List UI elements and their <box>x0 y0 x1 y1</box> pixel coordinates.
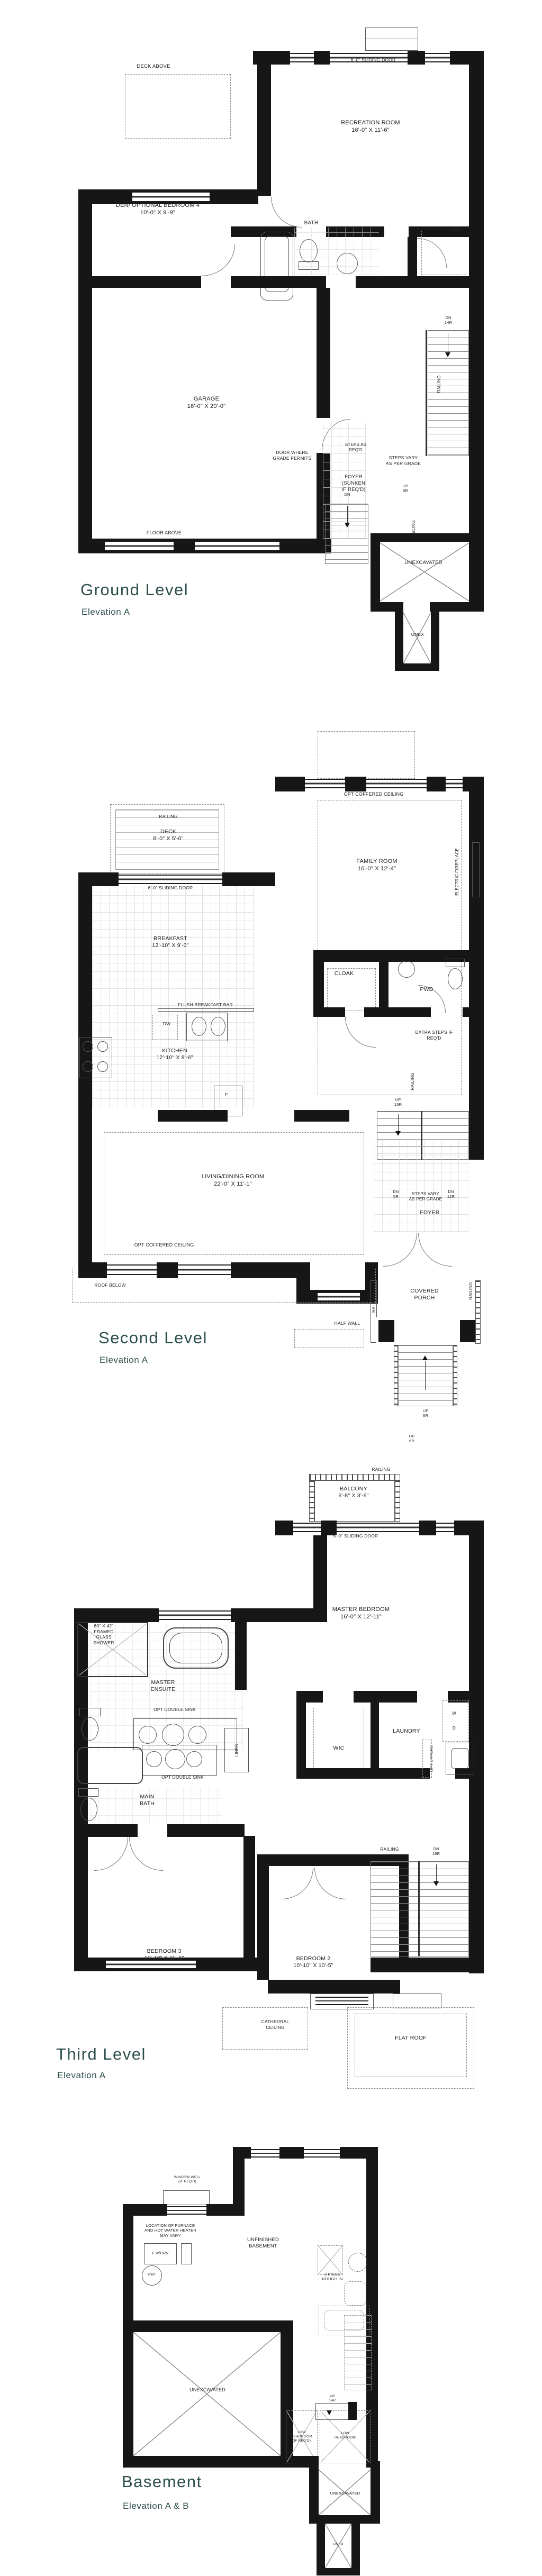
breakfast-label: BREAKFAST 12'-10" X 9'-0" <box>152 935 188 949</box>
stair-rail <box>418 1861 420 1956</box>
breakfast-bar-counter <box>158 1008 254 1012</box>
washer-dryer <box>442 1700 469 1742</box>
window <box>293 1523 321 1532</box>
porch-step-rail <box>453 1345 457 1406</box>
second-level-subtitle: Elevation A <box>100 1354 148 1366</box>
dn-16r-label: DN 16R <box>432 1846 440 1856</box>
low-headroom-if-reqd-label: LOW HEADROOM (IF REQ'D) <box>291 2431 312 2443</box>
wall <box>395 663 439 671</box>
bed3-door-arc-right <box>129 1837 163 1871</box>
laundry-sink-bowl <box>451 1748 469 1769</box>
sink-bowl <box>211 1017 225 1036</box>
wic-2-label: WIC <box>333 1745 344 1752</box>
porch-steps <box>398 1345 453 1406</box>
vanity-sink <box>146 1751 162 1767</box>
master-ensuite-label: MASTER ENSUITE <box>151 1679 176 1693</box>
fireplace <box>472 842 480 897</box>
door-arc <box>271 197 302 227</box>
flatroof-bay <box>393 1994 441 2008</box>
porch-pillar <box>376 1317 397 1345</box>
wall <box>427 777 446 791</box>
vanity-sink <box>165 1749 185 1769</box>
unexcavated-2-label: UNEXCAVATED <box>330 2491 360 2496</box>
wall <box>354 1691 417 1703</box>
garage-door <box>105 541 174 551</box>
wall <box>395 612 403 671</box>
wall <box>233 2147 245 2206</box>
wall <box>279 2147 304 2159</box>
wic-shelving <box>313 1708 364 1769</box>
stair-arrow-down <box>395 1131 401 1136</box>
bedroom-3-label: BEDROOM 3 10'-10" X 11'-5" <box>144 1948 184 1962</box>
cathedral-ceiling-label: CATHEDRAL CEILING <box>261 2019 290 2030</box>
vanity-sink <box>186 1751 202 1767</box>
balcony-label: BALCONY 6'-8" X 3'-6" <box>338 1486 368 1499</box>
wall <box>371 1691 379 1777</box>
flush-breakfast-bar-label: FLUSH BREAKFAST BAR <box>178 1002 233 1008</box>
wall <box>222 872 275 886</box>
opt-double-sink-ensuite-label: OPT DOUBLE SINK <box>153 1707 196 1713</box>
stair-arrow-down <box>445 352 450 357</box>
railing-upper-stair-label: RAILING <box>437 375 442 393</box>
foyer-sunken-label: FOYER (SUNKEN IF REQ'D) <box>341 474 365 493</box>
sliding-door <box>337 1523 419 1532</box>
entry-step <box>365 28 418 51</box>
window <box>446 779 463 788</box>
stair-dashed-up <box>344 2315 372 2390</box>
door-where-grade-permits-label: DOOR WHERE GRADE PERMITS <box>273 450 312 461</box>
wall <box>463 1007 484 1017</box>
dishwasher <box>152 1015 178 1040</box>
wall <box>275 777 305 791</box>
up-6r-a-label: UP 6R <box>423 1408 429 1418</box>
wall <box>123 2456 293 2468</box>
family-coffered-outline <box>318 800 462 1095</box>
wall-left <box>78 189 92 553</box>
burner <box>97 1061 108 1072</box>
porch-railing <box>475 1280 481 1344</box>
wall <box>275 1521 293 1535</box>
sliding-door <box>119 875 222 884</box>
bed2-door-arc-left <box>282 1868 313 1899</box>
window <box>159 1610 231 1620</box>
wall <box>371 533 484 542</box>
recreation-room-label: RECREATION ROOM 16'-0" X 11'-6" <box>341 120 400 134</box>
wall <box>408 51 425 65</box>
step-arrow-stem <box>425 1361 426 1390</box>
window <box>251 2149 279 2158</box>
stair-dn16r <box>371 1861 469 1956</box>
half-wall-label: HALF WALL <box>335 1321 360 1326</box>
wall <box>431 612 439 671</box>
basement-subtitle: Elevation A & B <box>123 2500 189 2511</box>
unex-x <box>403 613 431 663</box>
flat-roof-label: FLAT ROOF <box>395 2035 427 2042</box>
bath-label: BATH <box>304 220 319 227</box>
wall-wic <box>408 237 417 276</box>
garage-label: GARAGE 18'-0" X 20'-0" <box>187 396 226 411</box>
pwd-label: PWD <box>420 986 433 993</box>
window <box>290 53 314 62</box>
ground-level-title: Ground Level <box>80 580 188 600</box>
wall <box>243 1836 255 1966</box>
three-piece-rough-in-label: 3 PIECE ROUGH IN <box>322 2272 342 2282</box>
deck-above-label: DECK ABOVE <box>137 63 170 70</box>
bath-tile <box>294 227 379 275</box>
wall <box>296 1768 380 1779</box>
wall <box>268 1980 400 1994</box>
vanity-sink <box>188 1726 206 1744</box>
stair-arrow-down <box>345 523 350 527</box>
sliding-door-5ft-label: 5'-0" SLIDING DOOR <box>333 1533 378 1539</box>
furnace-note-label: LOCATION OF FURNACE AND HOT WATER HEATER… <box>144 2223 196 2238</box>
half-wall-vertical-label: HALF WALL <box>372 1288 377 1313</box>
flat-roof-inner <box>355 2014 467 2077</box>
window <box>305 779 345 788</box>
landing-arrow-down <box>327 2410 332 2415</box>
window <box>132 192 210 202</box>
wall <box>345 777 366 791</box>
wall-garage-top <box>238 276 296 288</box>
bed2-door-arc-right <box>314 1868 346 1899</box>
wall <box>235 1622 247 1690</box>
covered-porch-label: COVERED PORCH <box>410 1288 438 1301</box>
burner <box>97 1041 108 1052</box>
kitchen-label: KITCHEN 12'-10" X 8'-6" <box>156 1048 193 1061</box>
window <box>425 53 450 62</box>
up-16r-label: UP 16R <box>394 1097 402 1107</box>
window <box>436 1523 454 1532</box>
wall <box>419 1521 436 1535</box>
wall <box>74 1824 138 1837</box>
step-arrow-up <box>422 1355 428 1360</box>
wall-garage-top <box>78 276 201 288</box>
opt-uppers-label: OPT UPPERS <box>429 1745 433 1772</box>
ensuite-tub-inner <box>169 1633 222 1663</box>
dn-12r-label: DN 12R <box>447 1189 455 1199</box>
family-room-label: FAMILY ROOM 16'-0" X 12'-4" <box>356 858 398 873</box>
wic-label: WIC <box>451 226 462 233</box>
sliding-door-6ft-2-label: 6'-0" SLIDING DOOR <box>148 885 193 891</box>
unfinished-basement-label: UNFINISHED BASEMENT <box>247 2237 279 2250</box>
dn-14r-label: DN 14R <box>445 315 452 325</box>
stair-arrow-stem <box>448 333 448 353</box>
unexcavated-main-label: UNEXCAVATED <box>189 2387 225 2393</box>
opt-double-sink-mainbath-label: OPT DOUBLE SINK <box>161 1774 204 1780</box>
rough-in-toilet <box>344 2281 366 2306</box>
up-6r-b-label: UP 6R <box>409 1434 415 1444</box>
garage-door <box>195 541 279 551</box>
wall <box>296 1691 323 1703</box>
unexcavated-x <box>380 543 469 601</box>
railing-lower-stair-label: RAILING <box>411 520 417 538</box>
rough-in-shower-x <box>319 2246 342 2274</box>
den-optional-bedroom-4-label: DEN/ OPTIONAL BEDROOM 4 10'-0" X 9'-9" <box>116 202 200 217</box>
electric-fireplace-label: ELECTRIC FIREPLACE <box>455 848 460 896</box>
ensuite-toilet <box>82 1717 98 1741</box>
railing-up-stair-label: RAILING <box>410 1072 415 1090</box>
stair-dn14r <box>428 330 469 456</box>
burner <box>83 1061 93 1072</box>
wall <box>257 65 271 196</box>
pwd-sink <box>398 961 415 978</box>
f-w-hrv-label: F w/HRV <box>152 2251 168 2255</box>
wall <box>371 1958 484 1972</box>
window <box>304 2149 340 2158</box>
wall <box>371 533 380 611</box>
wall <box>430 602 484 612</box>
floorplan-canvas: Ground Level Elevation A Second Level El… <box>0 0 542 2576</box>
wall-garage-right <box>317 288 330 418</box>
wall <box>257 1866 269 1980</box>
mainbath-tile <box>90 1787 222 1824</box>
balcony-railing-side <box>309 1480 314 1522</box>
wall <box>309 2515 380 2524</box>
entry-step-line <box>365 39 418 39</box>
up-5r-label: UP 5R <box>403 484 409 494</box>
third-level-subtitle: Elevation A <box>57 2070 106 2081</box>
wall <box>294 1110 349 1122</box>
foyer-label: FOYER <box>420 1209 439 1216</box>
stair-arrow-down <box>433 1881 439 1886</box>
ground-level-subtitle: Elevation A <box>82 606 130 617</box>
front-door-arc-left <box>383 1233 417 1267</box>
bedroom-2-label: BEDROOM 2 10'-10" X 10'-5" <box>293 1955 333 1969</box>
wall <box>314 51 330 65</box>
wall <box>317 2568 360 2575</box>
second-level-title: Second Level <box>98 1328 207 1349</box>
window <box>167 2206 206 2215</box>
wall <box>167 1824 245 1837</box>
wall-right <box>469 51 484 612</box>
living-coffered-outline <box>104 1132 364 1255</box>
toilet-bowl <box>80 1798 97 1821</box>
wall <box>356 276 484 288</box>
burner <box>83 1041 93 1052</box>
dn-5r-label: DN 5R <box>393 1189 399 1199</box>
pwd-toilet <box>448 968 463 989</box>
sliding-door-6ft-label: 6'-0" SLIDING DOOR <box>351 57 396 63</box>
balcony-railing <box>309 1474 400 1480</box>
ensuite-toilet-tank <box>79 1708 101 1716</box>
floor-above-label: FLOOR ABOVE <box>147 530 182 536</box>
wall <box>309 2461 319 2524</box>
porch-step-rail <box>394 1345 398 1406</box>
wall <box>296 1703 306 1777</box>
laundry-label: LAUNDRY <box>393 1728 420 1735</box>
stair-dn-basement <box>325 504 368 564</box>
steps-vary-as-per-grade-label: STEPS VARY AS PER GRADE <box>386 455 421 466</box>
furnace-side-box <box>181 2243 192 2264</box>
living-dining-room-label: LIVING/DINING ROOM 22'-0" X 11'-1" <box>202 1173 265 1188</box>
wall <box>371 602 403 612</box>
railing-balcony-label: RAILING <box>372 1467 390 1472</box>
opt-coffered-ceiling-family-label: OPT COFFERED CEILING <box>344 791 404 797</box>
unex-label: UNEX <box>411 632 424 638</box>
extra-steps-if-reqd-label: EXTRA STEPS IF REQ'D <box>415 1030 453 1041</box>
stair-arrow-stem <box>347 506 348 524</box>
master-bedroom-label: MASTER BEDROOM 16'-0" X 12'-11" <box>332 1606 390 1621</box>
window <box>315 1997 368 2005</box>
railing-porch-label: RAILING <box>468 1282 474 1299</box>
breakfast-kitchen-tile <box>92 886 254 1107</box>
unex-2-label: UNEX <box>333 2543 344 2547</box>
mainbath-tub <box>77 1747 143 1784</box>
stair-arrow-stem <box>436 1864 437 1882</box>
up-14r-label: UP 14R <box>329 2395 336 2403</box>
wall <box>313 1007 345 1017</box>
dw-label: DW <box>163 1021 171 1027</box>
wall <box>364 1007 389 1017</box>
roof-below-label: ROOF BELOW <box>94 1282 126 1288</box>
railing-stair-3-label: RAILING <box>380 1846 399 1852</box>
wall <box>132 2320 293 2332</box>
foyer2-tile <box>374 1139 469 1232</box>
wall <box>158 1110 228 1122</box>
toilet-tank <box>78 1788 98 1797</box>
framed-glass-shower-label: 60" X 42" FRAMED GLASS SHOWER <box>93 1623 114 1646</box>
cloak-label: CLOAK <box>335 970 354 977</box>
railing-deck-label: RAILING <box>159 814 177 820</box>
low-headroom-label: LOW HEADROOM <box>335 2432 356 2440</box>
front-door-arc-right <box>418 1233 452 1267</box>
den-door-arc <box>201 244 235 276</box>
vanity-sink <box>162 1724 184 1746</box>
deck-above-outline <box>125 74 231 139</box>
dryer-label: D <box>453 1726 456 1731</box>
bed3-door-arc-left <box>94 1837 128 1871</box>
steps-as-reqd-label: STEPS AS REQ'D <box>345 442 366 453</box>
wall <box>206 2204 245 2216</box>
opt-coffered-ceiling-living-label: OPT COFFERED CEILING <box>134 1242 194 1248</box>
steps-vary-as-per-grade-2-label: STEPS VARY AS PER GRADE <box>409 1191 442 1202</box>
hwt-label: HWT <box>148 2273 156 2277</box>
unexcavated-x-main <box>133 2332 281 2456</box>
sink-bowl <box>192 1017 206 1036</box>
stair-arrow-stem <box>398 1114 399 1132</box>
balcony-railing-side <box>395 1480 400 1522</box>
wall-stub <box>348 2402 357 2420</box>
third-level-title: Third Level <box>56 2044 146 2065</box>
fridge-label: F <box>225 1092 228 1098</box>
vanity-sink <box>139 1726 157 1744</box>
linen-label: LINEN <box>234 1744 240 1757</box>
unexcavated-label: UNEXCAVATED <box>404 560 442 566</box>
window-well-label: WINDOW WELL (IF REQ'D) <box>174 2176 201 2184</box>
basement-landing <box>315 2403 349 2420</box>
main-bath-label: MAIN BATH <box>140 1794 155 1807</box>
pwd-toilet-tank <box>446 959 465 967</box>
wall-ensuite-top <box>231 1608 327 1622</box>
basement-title: Basement <box>122 2472 202 2492</box>
washer-label: W <box>452 1711 456 1716</box>
stair-rail <box>426 330 427 456</box>
deck-label: DECK 8'-0" X 5'-0" <box>153 829 183 842</box>
coffered-bump-outline <box>318 731 415 779</box>
wall-right <box>469 777 484 1160</box>
wall-left <box>123 2204 133 2461</box>
wall <box>371 2461 380 2524</box>
window-well-box <box>163 2190 210 2205</box>
rough-in-sink <box>348 2253 367 2272</box>
window <box>366 779 427 788</box>
half-wall-dashed <box>294 1329 364 1348</box>
wall <box>253 51 290 65</box>
wall-master-left <box>313 1535 327 1615</box>
